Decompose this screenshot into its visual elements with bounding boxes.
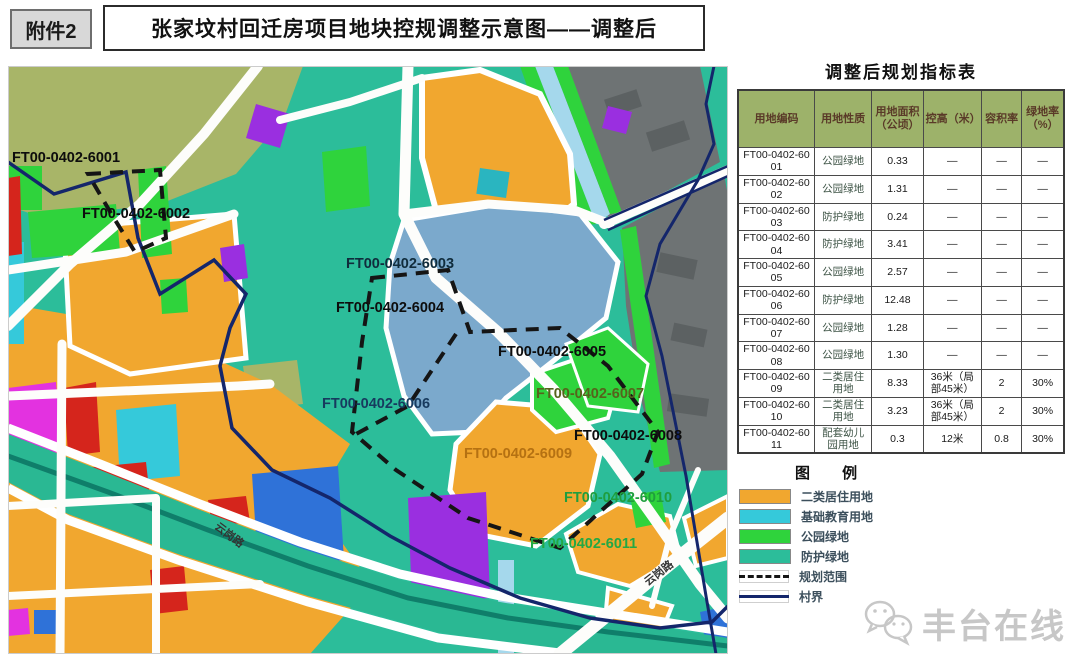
table-cell: 0.24 (872, 203, 923, 231)
table-cell: — (923, 148, 981, 176)
landuse-map: FT00-0402-6001FT00-0402-6002FT00-0402-60… (8, 66, 728, 654)
table-cell: FT00-0402-6009 (738, 370, 814, 398)
legend-item: 规划范围 (739, 569, 1065, 583)
table-cell: — (1022, 175, 1064, 203)
table-header-cell: 用地面积（公顷） (872, 90, 923, 148)
legend-label: 防护绿地 (801, 548, 849, 565)
legend-label: 二类居住用地 (801, 488, 873, 505)
table-cell: — (923, 314, 981, 342)
plot-label: FT00-0402-6005 (498, 344, 606, 360)
table-row: FT00-0402-6007公园绿地1.28——— (738, 314, 1064, 342)
table-cell: 二类居住用地 (814, 370, 871, 398)
table-header-cell: 用地性质 (814, 90, 871, 148)
legend-swatch-fill (739, 509, 791, 524)
table-row: FT00-0402-6003防护绿地0.24——— (738, 203, 1064, 231)
legend-item: 基础教育用地 (739, 509, 1065, 523)
table-row: FT00-0402-6005公园绿地2.57——— (738, 259, 1064, 287)
legend-swatch-fill (739, 489, 791, 504)
table-cell: — (981, 203, 1021, 231)
table-cell: — (981, 259, 1021, 287)
plot-label: FT00-0402-6010 (564, 490, 672, 506)
right-panel: 调整后规划指标表 用地编码用地性质用地面积（公顷）控高（米）容积率绿地率（%） … (737, 56, 1065, 609)
table-cell: FT00-0402-6006 (738, 286, 814, 314)
table-cell: FT00-0402-6007 (738, 314, 814, 342)
legend-item: 防护绿地 (739, 549, 1065, 563)
table-cell: 3.23 (872, 397, 923, 425)
table-row: FT00-0402-6010二类居住用地3.2336米（局部45米）230% (738, 397, 1064, 425)
table-header-cell: 控高（米） (923, 90, 981, 148)
table-cell: 公园绿地 (814, 314, 871, 342)
table-cell: FT00-0402-6011 (738, 425, 814, 453)
table-cell: — (1022, 231, 1064, 259)
watermark: 丰台在线 (862, 594, 1068, 652)
table-cell: — (923, 259, 981, 287)
table-cell: 公园绿地 (814, 259, 871, 287)
plot-label: FT00-0402-6002 (82, 206, 190, 222)
table-row: FT00-0402-6011配套幼儿园用地0.312米0.830% (738, 425, 1064, 453)
legend-item: 二类居住用地 (739, 489, 1065, 503)
legend-label: 村界 (799, 588, 823, 605)
legend-label: 基础教育用地 (801, 508, 873, 525)
plot-label: FT00-0402-6001 (12, 150, 120, 166)
table-cell: — (923, 342, 981, 370)
table-cell: — (923, 286, 981, 314)
table-cell: — (981, 175, 1021, 203)
legend-swatch-fill (739, 529, 791, 544)
table-cell: 12.48 (872, 286, 923, 314)
table-cell: 2.57 (872, 259, 923, 287)
table-header-cell: 容积率 (981, 90, 1021, 148)
table-row: FT00-0402-6006防护绿地12.48——— (738, 286, 1064, 314)
table-cell: 12米 (923, 425, 981, 453)
planning-indicators-table: 用地编码用地性质用地面积（公顷）控高（米）容积率绿地率（%） FT00-0402… (737, 89, 1065, 454)
legend-label: 规划范围 (799, 568, 847, 585)
legend-swatch-fill (739, 549, 791, 564)
table-cell: 防护绿地 (814, 286, 871, 314)
table-cell: 0.8 (981, 425, 1021, 453)
table-body: FT00-0402-6001公园绿地0.33———FT00-0402-6002公… (738, 148, 1064, 454)
table-cell: 1.30 (872, 342, 923, 370)
table-cell: 配套幼儿园用地 (814, 425, 871, 453)
table-cell: 公园绿地 (814, 148, 871, 176)
table-cell: — (1022, 342, 1064, 370)
legend-title: 图 例 (795, 462, 1065, 483)
table-cell: 8.33 (872, 370, 923, 398)
table-cell: — (923, 175, 981, 203)
table-cell: 公园绿地 (814, 175, 871, 203)
table-cell: — (923, 203, 981, 231)
page-title: 张家坟村回迁房项目地块控规调整示意图——调整后 (103, 5, 705, 51)
table-cell: — (981, 342, 1021, 370)
table-cell: FT00-0402-6004 (738, 231, 814, 259)
wechat-icon (862, 597, 918, 649)
landuse-map-svg: FT00-0402-6001FT00-0402-6002FT00-0402-60… (8, 66, 728, 654)
table-cell: 3.41 (872, 231, 923, 259)
table-cell: 36米（局部45米） (923, 397, 981, 425)
table-cell: — (1022, 203, 1064, 231)
table-cell: — (981, 314, 1021, 342)
legend-swatch-line (739, 590, 789, 603)
table-cell: — (1022, 286, 1064, 314)
table-cell: 36米（局部45米） (923, 370, 981, 398)
table-cell: 防护绿地 (814, 203, 871, 231)
legend-label: 公园绿地 (801, 528, 849, 545)
watermark-text: 丰台在线 (922, 599, 1066, 648)
plot-label: FT00-0402-6003 (346, 256, 454, 272)
plot-label: FT00-0402-6006 (322, 396, 430, 412)
table-cell: — (1022, 314, 1064, 342)
legend-item: 公园绿地 (739, 529, 1065, 543)
table-cell: FT00-0402-6001 (738, 148, 814, 176)
table-cell: FT00-0402-6005 (738, 259, 814, 287)
table-cell: — (923, 231, 981, 259)
table-cell: 1.31 (872, 175, 923, 203)
table-row: FT00-0402-6002公园绿地1.31——— (738, 175, 1064, 203)
plot-label: FT00-0402-6009 (464, 446, 572, 462)
legend: 图 例 二类居住用地基础教育用地公园绿地防护绿地规划范围村界 (737, 462, 1065, 603)
table-cell: FT00-0402-6003 (738, 203, 814, 231)
table-cell: FT00-0402-6002 (738, 175, 814, 203)
table-cell: 1.28 (872, 314, 923, 342)
table-cell: FT00-0402-6010 (738, 397, 814, 425)
plot-label: FT00-0402-6004 (336, 300, 444, 316)
table-cell: — (1022, 259, 1064, 287)
table-cell: FT00-0402-6008 (738, 342, 814, 370)
table-row: FT00-0402-6009二类居住用地8.3336米（局部45米）230% (738, 370, 1064, 398)
table-cell: 30% (1022, 370, 1064, 398)
plot-label: FT00-0402-6007 (536, 386, 644, 402)
attachment-badge: 附件2 (10, 9, 92, 49)
table-title: 调整后规划指标表 (737, 58, 1065, 83)
table-cell: — (981, 231, 1021, 259)
legend-items: 二类居住用地基础教育用地公园绿地防护绿地规划范围村界 (737, 489, 1065, 603)
table-cell: 2 (981, 370, 1021, 398)
table-row: FT00-0402-6008公园绿地1.30——— (738, 342, 1064, 370)
table-row: FT00-0402-6004防护绿地3.41——— (738, 231, 1064, 259)
table-cell: 二类居住用地 (814, 397, 871, 425)
table-cell: 0.33 (872, 148, 923, 176)
table-header-cell: 绿地率（%） (1022, 90, 1064, 148)
plot-label: FT00-0402-6011 (530, 536, 637, 552)
table-cell: — (1022, 148, 1064, 176)
table-header-row: 用地编码用地性质用地面积（公顷）控高（米）容积率绿地率（%） (738, 90, 1064, 148)
legend-swatch-dashed (739, 570, 789, 583)
table-cell: 30% (1022, 397, 1064, 425)
table-cell: — (981, 286, 1021, 314)
table-cell: 30% (1022, 425, 1064, 453)
table-cell: 防护绿地 (814, 231, 871, 259)
table-row: FT00-0402-6001公园绿地0.33——— (738, 148, 1064, 176)
table-cell: — (981, 148, 1021, 176)
table-cell: 2 (981, 397, 1021, 425)
plot-label: FT00-0402-6008 (574, 428, 682, 444)
table-header-cell: 用地编码 (738, 90, 814, 148)
table-cell: 公园绿地 (814, 342, 871, 370)
table-cell: 0.3 (872, 425, 923, 453)
